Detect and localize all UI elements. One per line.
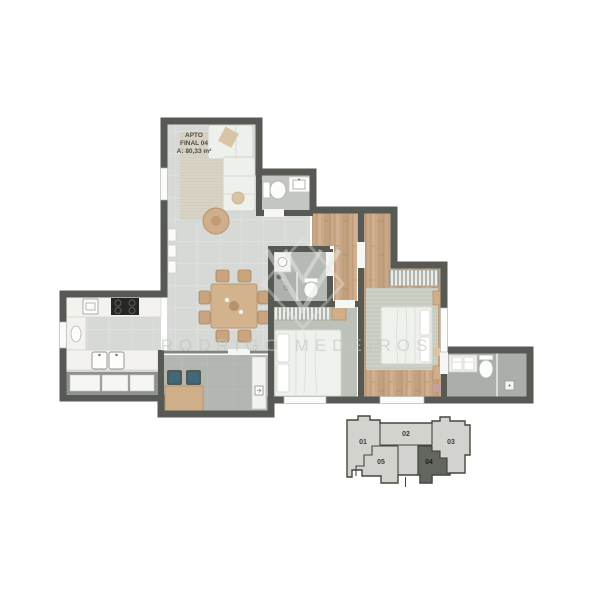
keyplan-unit-03-label: 03 <box>447 439 455 446</box>
bedroom2-door <box>357 242 365 268</box>
living-window <box>161 168 168 200</box>
pillow <box>420 310 430 335</box>
pillow <box>277 364 289 392</box>
sink-icon <box>289 177 310 192</box>
bedroom2-window <box>380 397 424 404</box>
nightstand <box>332 307 346 320</box>
unit-label-line2: FINAL 04 <box>180 140 208 147</box>
balcony-cabinet <box>252 357 266 409</box>
bedroom2-side-window <box>441 308 448 352</box>
keyplan-unit-04-label: 04 <box>425 459 433 466</box>
unit-label-line1: APTO <box>185 132 203 139</box>
keyplan-unit-02-label: 02 <box>402 431 410 438</box>
unit-label-line3: A: 80,33 m² <box>177 148 213 155</box>
round-pillow <box>232 192 244 204</box>
floor-plan-image: RODRIGO MEDEIROS APTO FINAL 04 A: 80,33 … <box>0 0 600 600</box>
ensuite-door <box>440 352 448 374</box>
dining-table-icon <box>211 284 257 328</box>
wall-oven-icon <box>83 299 98 314</box>
keyplan: 01 02 03 04 05 <box>347 416 470 487</box>
toilet-icon <box>263 181 286 199</box>
watermark-text: RODRIGO MEDEIROS <box>161 336 434 355</box>
balcony-table-icon <box>165 386 203 411</box>
vanity-icon <box>449 355 477 372</box>
bedroom1-door <box>335 300 355 308</box>
coffee-table-icon <box>203 208 229 234</box>
keyplan-building-outline <box>347 416 470 483</box>
kitchen-lower-cabinets <box>64 372 158 394</box>
closet-item <box>433 384 442 392</box>
cooktop-icon <box>111 298 139 315</box>
towel-stack <box>452 357 462 370</box>
lavatory-door <box>264 209 284 217</box>
wardrobe-icon <box>389 270 439 286</box>
kitchen-window <box>60 322 67 348</box>
floor-plan-svg: RODRIGO MEDEIROS APTO FINAL 04 A: 80,33 … <box>0 0 600 600</box>
keyplan-unit-01-label: 01 <box>359 439 367 446</box>
basin-icon <box>71 326 81 342</box>
keyplan-unit-05-label: 05 <box>377 459 385 466</box>
bedroom1-window <box>284 397 326 404</box>
towel-stack <box>464 357 474 370</box>
wall-niches <box>168 229 176 273</box>
toilet-icon <box>479 355 493 378</box>
